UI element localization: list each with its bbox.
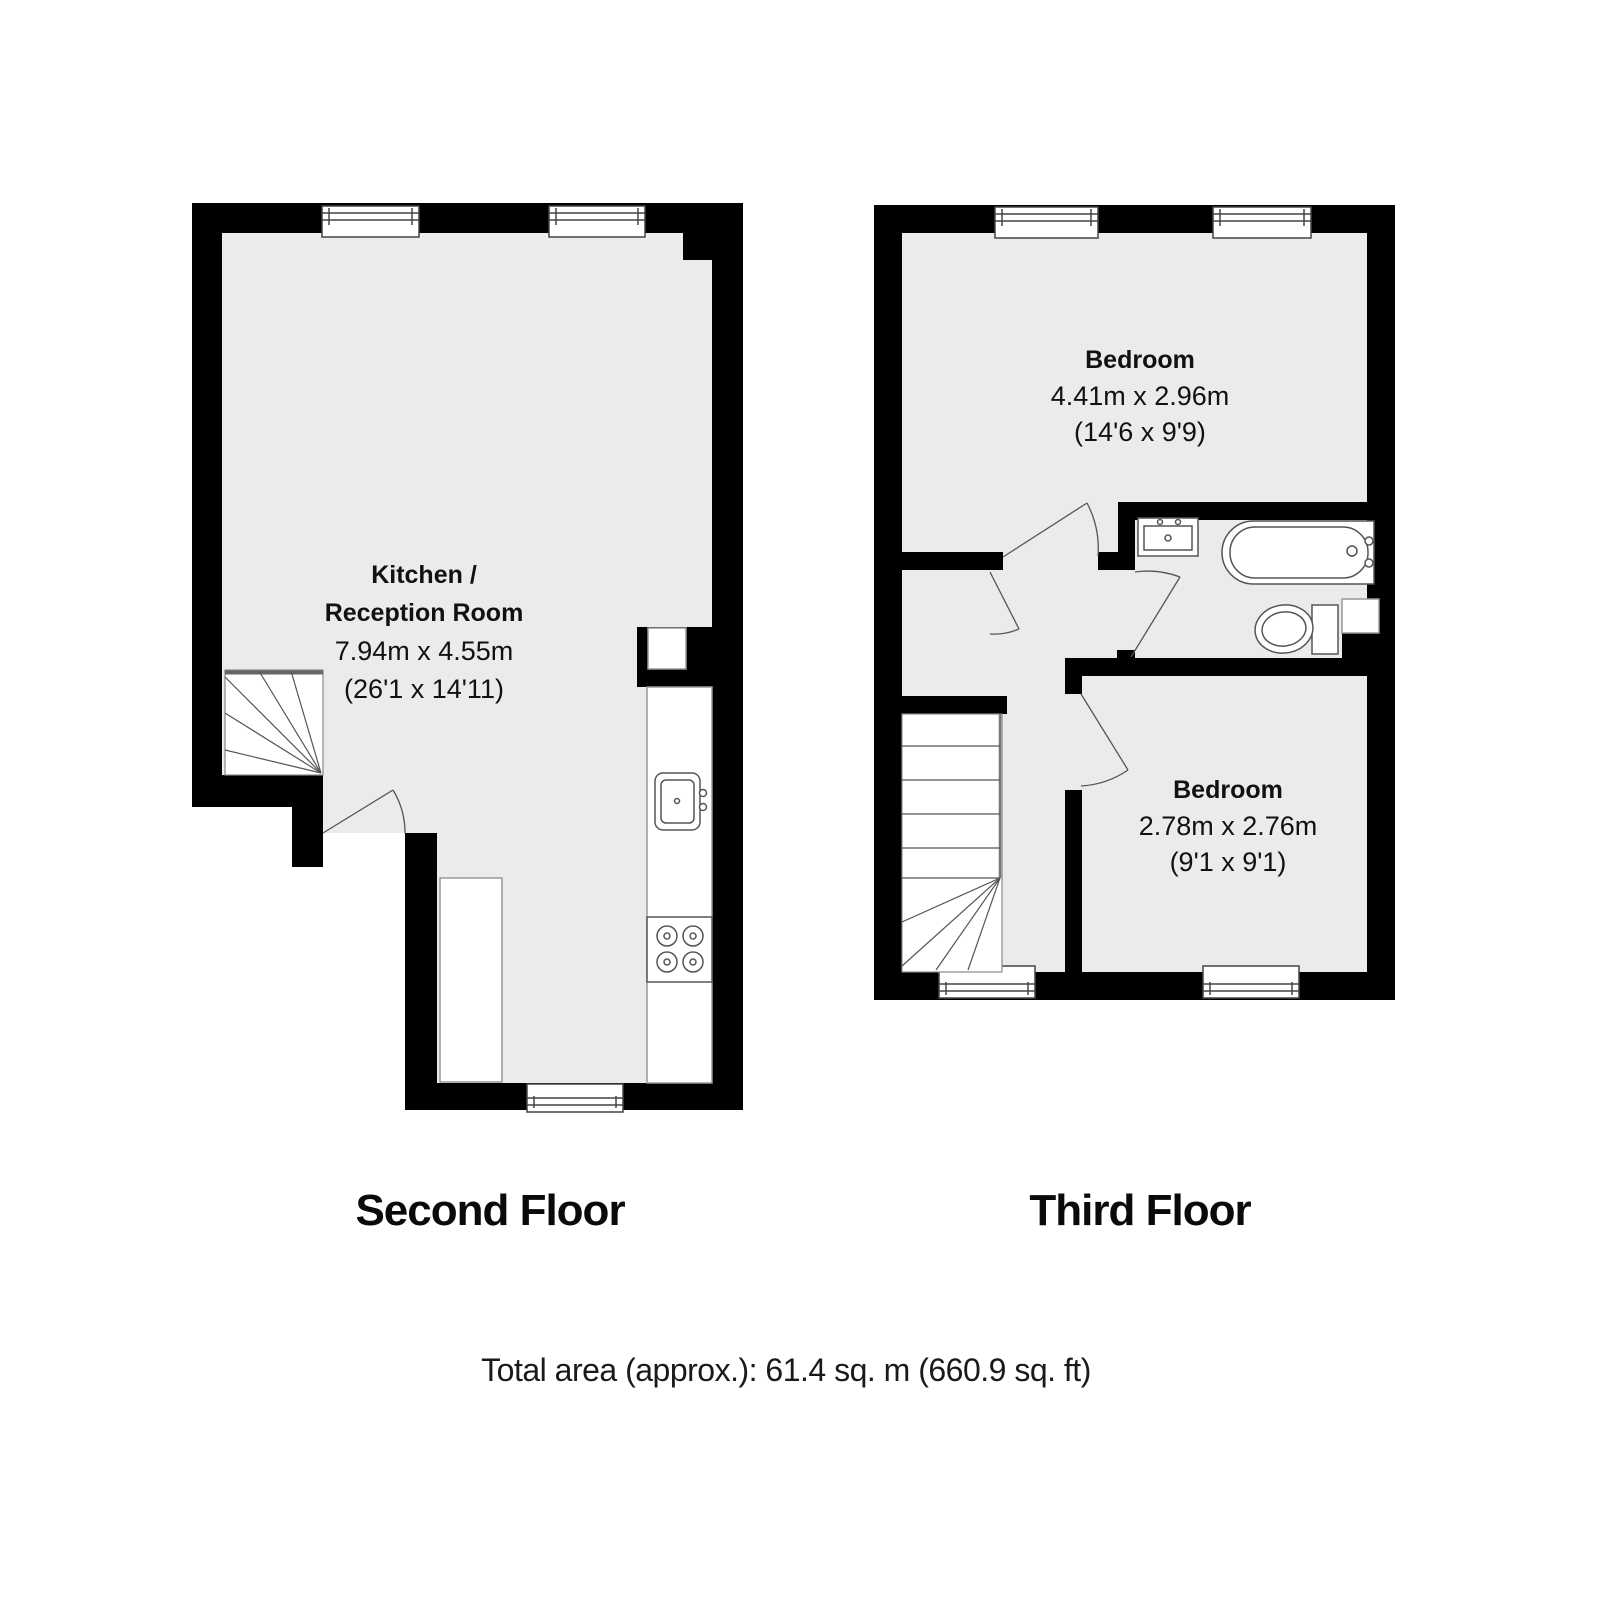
kitchen-counter	[647, 687, 712, 1083]
room-dimensions-imperial: (26'1 x 14'11)	[325, 670, 524, 708]
room-dimensions-metric: 2.78m x 2.76m	[1139, 808, 1318, 844]
kitchen-unit	[440, 878, 502, 1082]
total-area-note: Total area (approx.): 61.4 sq. m (660.9 …	[481, 1352, 1091, 1389]
room-dimensions-imperial: (14'6 x 9'9)	[1051, 414, 1230, 450]
bathroom-sink-icon	[1138, 518, 1198, 556]
window	[549, 206, 645, 237]
floorplan-page: Kitchen / Reception Room 7.94m x 4.55m (…	[0, 0, 1600, 1600]
room-dimensions-imperial: (9'1 x 9'1)	[1139, 844, 1318, 880]
room-label-bedroom-large: Bedroom 4.41m x 2.96m (14'6 x 9'9)	[1051, 342, 1230, 450]
window	[527, 1084, 623, 1112]
room-name: Bedroom	[1051, 342, 1230, 378]
room-dimensions-metric: 4.41m x 2.96m	[1051, 378, 1230, 414]
window	[995, 207, 1098, 238]
room-dimensions-metric: 7.94m x 4.55m	[325, 632, 524, 670]
window	[1213, 207, 1311, 238]
sink-icon	[655, 773, 707, 830]
third-floor-plan	[874, 205, 1395, 1000]
floor-title-second: Second Floor	[355, 1186, 624, 1236]
bathtub-icon	[1222, 521, 1374, 584]
room-name: Kitchen /	[325, 556, 524, 594]
room-label-bedroom-small: Bedroom 2.78m x 2.76m (9'1 x 9'1)	[1139, 772, 1318, 880]
room-name: Bedroom	[1139, 772, 1318, 808]
chimney-recess	[648, 628, 686, 669]
room-label-kitchen-reception: Kitchen / Reception Room 7.94m x 4.55m (…	[325, 556, 524, 708]
window	[1203, 966, 1299, 998]
floor-title-third: Third Floor	[1029, 1186, 1250, 1236]
window	[322, 206, 419, 237]
staircase	[225, 670, 323, 775]
hob-icon	[647, 917, 712, 982]
staircase	[902, 714, 1002, 972]
room-name: Reception Room	[325, 594, 524, 632]
wall-niche	[1342, 599, 1379, 633]
